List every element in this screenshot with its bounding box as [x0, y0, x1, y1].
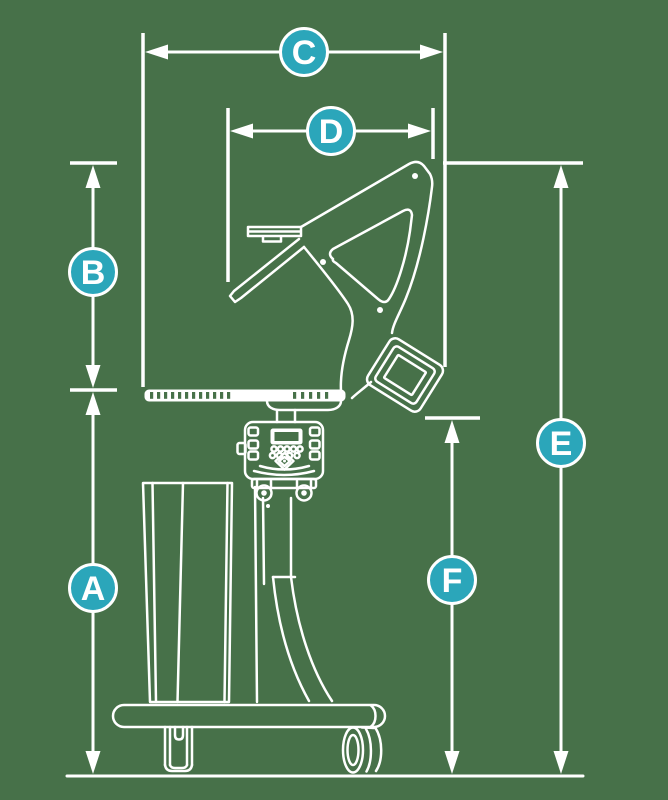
- dimension-letter: F: [442, 562, 463, 600]
- dimension-letter: E: [550, 425, 573, 463]
- pivot-hole-left: [320, 259, 326, 265]
- dimension-label-f: F: [429, 557, 476, 604]
- dimension-diagram: C D B A E F: [0, 0, 668, 800]
- pivot-hole-bottom: [377, 307, 383, 313]
- pivot-hole-top: [412, 173, 418, 179]
- dimension-letter: B: [81, 254, 106, 292]
- dimension-label-a: A: [70, 565, 117, 612]
- dimension-label-e: E: [538, 420, 585, 467]
- dimension-letter: C: [292, 34, 317, 72]
- dimension-label-d: D: [308, 108, 355, 155]
- dimension-letter: A: [81, 570, 106, 608]
- dimension-label-b: B: [70, 249, 117, 296]
- dimension-letter: D: [319, 113, 344, 151]
- dimension-label-c: C: [281, 29, 328, 76]
